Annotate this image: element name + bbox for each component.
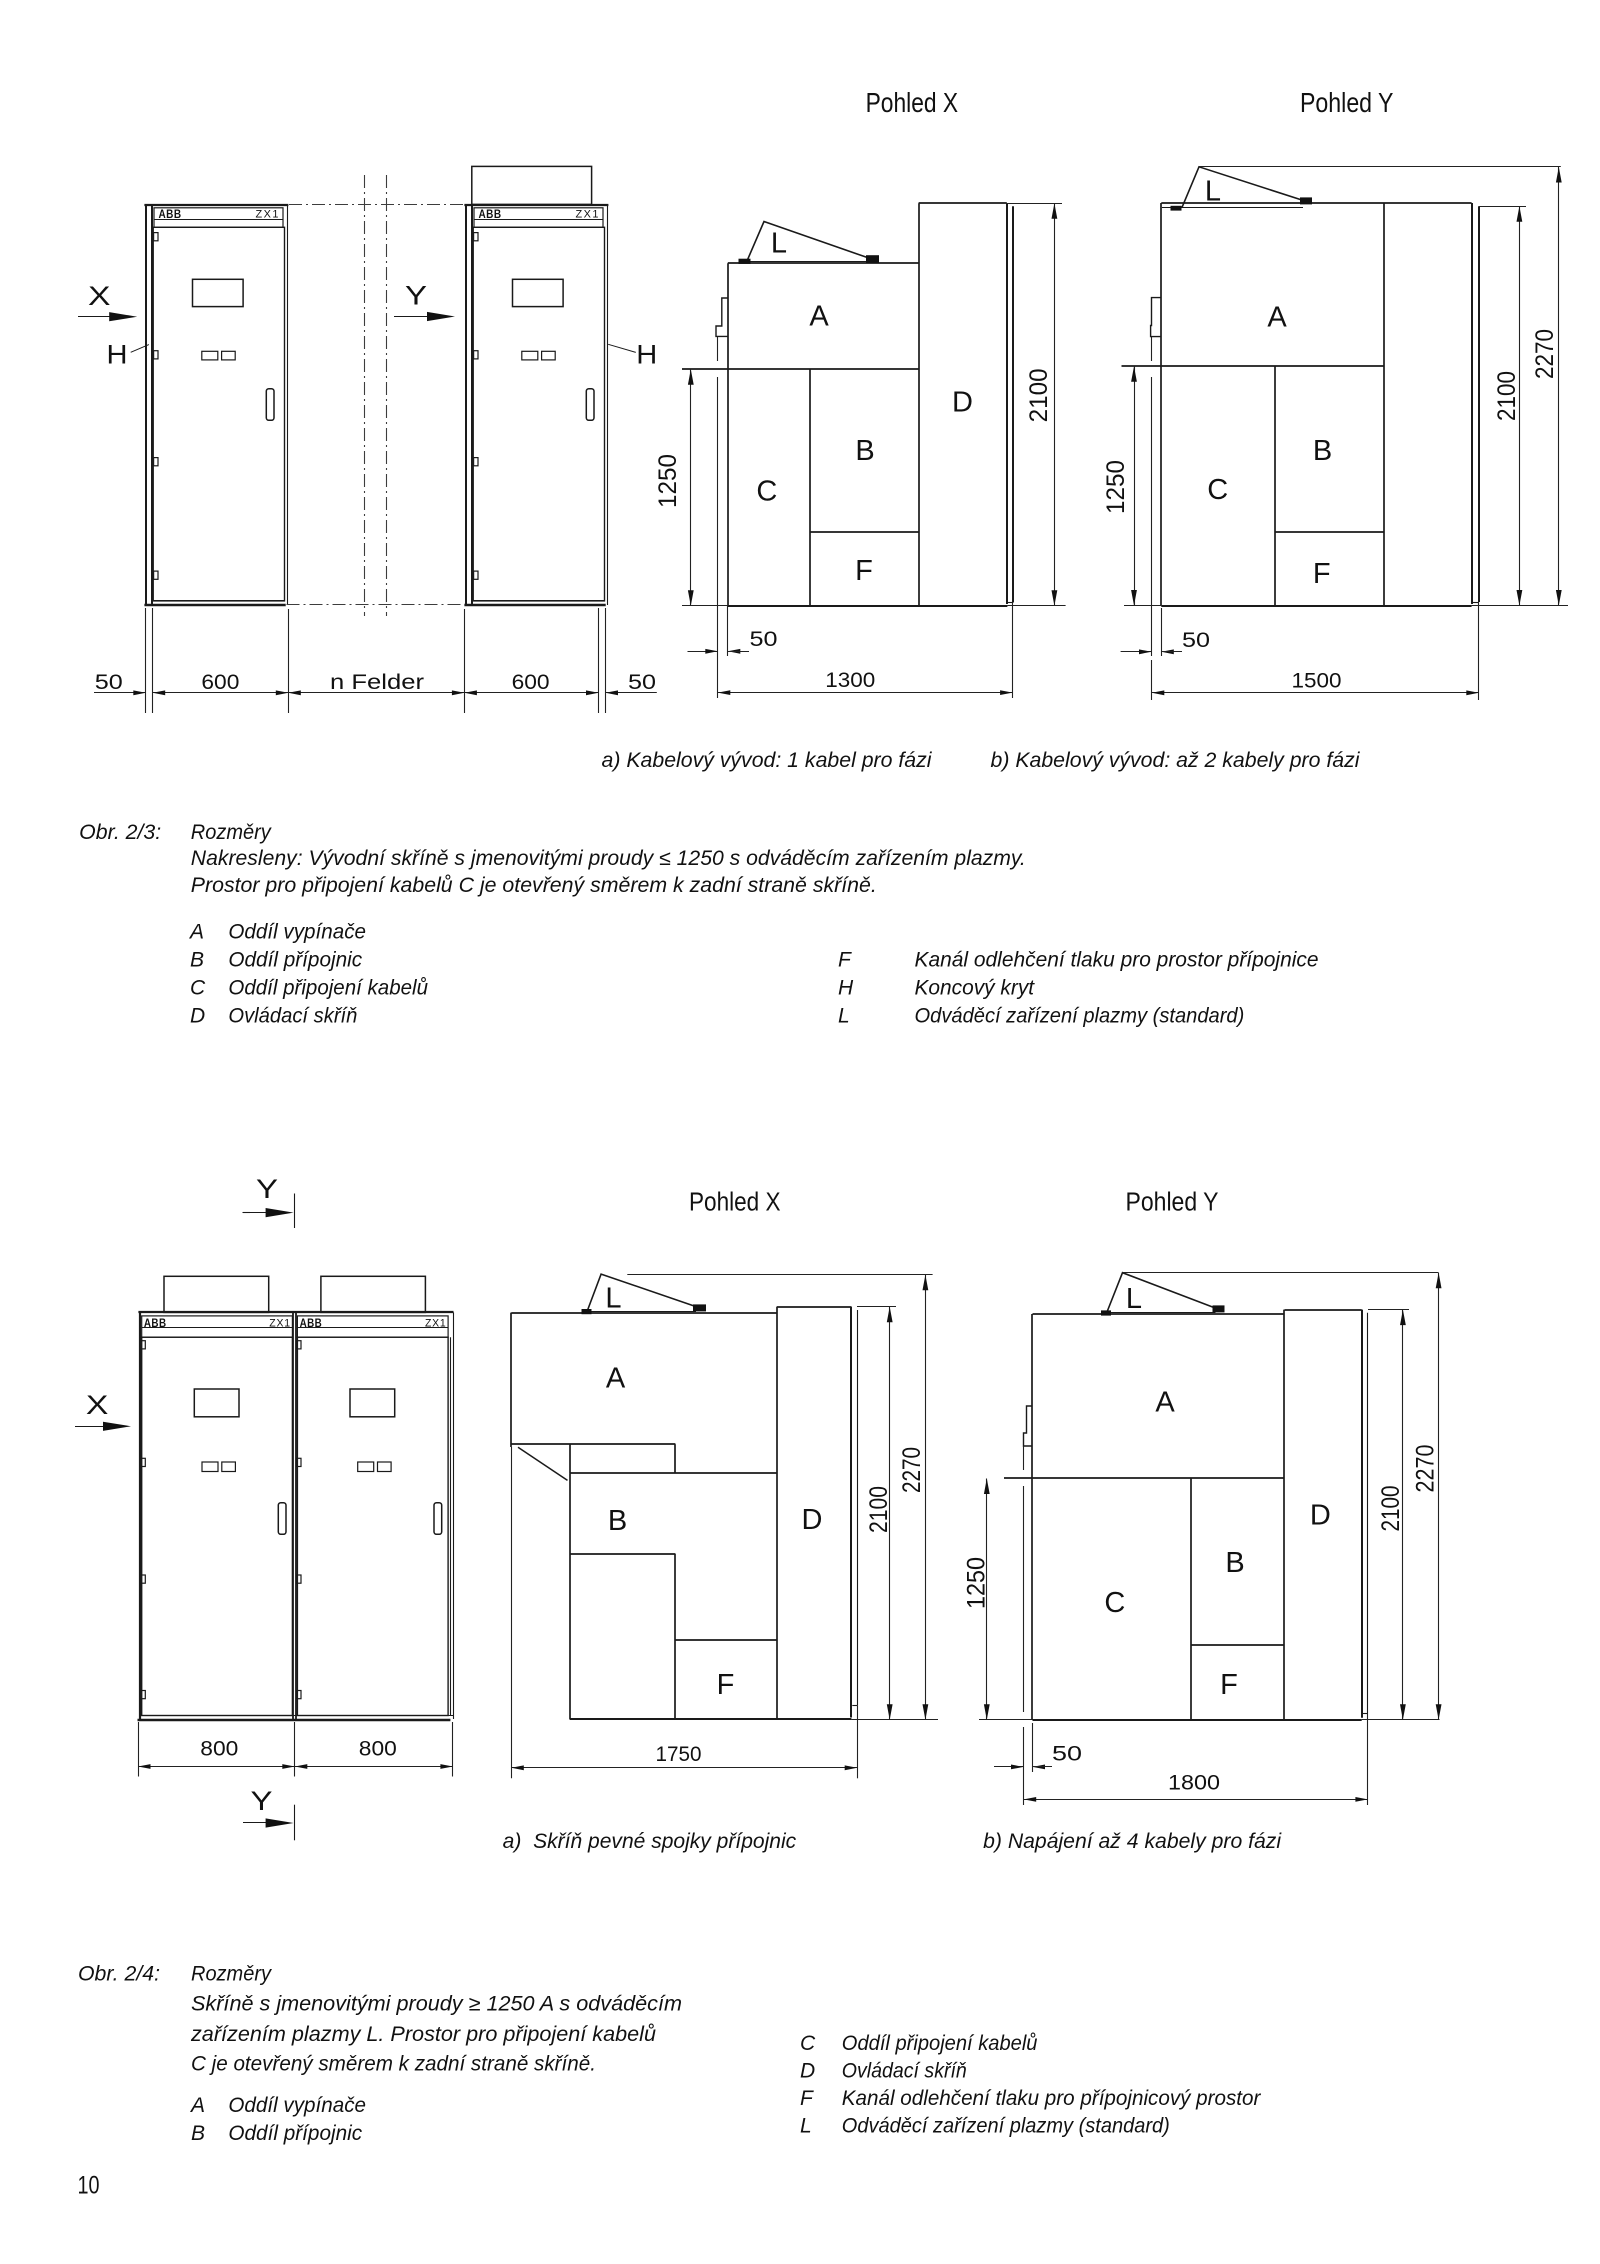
svg-text:A: A	[809, 301, 829, 333]
svg-text:b) Napájení až 4 kabely pro fá: b) Napájení až 4 kabely pro fázi	[983, 1830, 1282, 1853]
svg-text:Y: Y	[251, 1786, 273, 1816]
svg-text:Oddíl vypínače: Oddíl vypínače	[228, 2094, 366, 2117]
svg-text:50: 50	[95, 670, 123, 694]
svg-text:B: B	[1225, 1547, 1244, 1579]
svg-text:1250: 1250	[1102, 460, 1130, 514]
svg-text:A: A	[606, 1363, 626, 1395]
svg-text:Pohled Y: Pohled Y	[1126, 1189, 1219, 1217]
svg-text:Prostor pro připojení kabelů C: Prostor pro připojení kabelů C je otevře…	[191, 874, 877, 897]
svg-text:B: B	[190, 949, 204, 972]
svg-text:2100: 2100	[1025, 368, 1053, 422]
svg-text:Y: Y	[405, 281, 427, 311]
svg-text:800: 800	[200, 1736, 238, 1760]
svg-text:50: 50	[1052, 1741, 1082, 1765]
svg-text:Obr. 2/3:: Obr. 2/3:	[79, 821, 161, 844]
svg-text:B: B	[608, 1505, 627, 1537]
svg-text:2270: 2270	[1531, 329, 1559, 379]
svg-text:1750: 1750	[656, 1742, 702, 1766]
svg-text:600: 600	[201, 670, 239, 694]
svg-text:ZX1: ZX1	[256, 209, 281, 221]
svg-text:F: F	[800, 2087, 814, 2110]
svg-text:Obr. 2/4:: Obr. 2/4:	[78, 1963, 160, 1986]
svg-text:50: 50	[750, 627, 778, 651]
svg-text:a) Skříň pevné spojky přípojn: a) Skříň pevné spojky přípojnic	[503, 1830, 797, 1853]
svg-text:L: L	[800, 2115, 812, 2138]
svg-text:zařízením plazmy L. Prostor pr: zařízením plazmy L. Prostor pro připojen…	[190, 2023, 656, 2046]
svg-text:Skříně s jmenovitými proudy ≥: Skříně s jmenovitými proudy ≥ 1250 A s o…	[191, 1992, 682, 2015]
svg-text:Odváděcí zařízení plazmy (stan: Odváděcí zařízení plazmy (standard)	[842, 2115, 1170, 2138]
svg-text:L: L	[1205, 176, 1221, 208]
svg-text:Pohled X: Pohled X	[866, 87, 959, 118]
svg-text:a) Kabelový vývod: 1 kabel pro: a) Kabelový vývod: 1 kabel pro fázi	[602, 749, 933, 772]
svg-text:C: C	[1207, 474, 1228, 506]
svg-text:n Felder: n Felder	[330, 670, 424, 694]
svg-text:2100: 2100	[865, 1486, 893, 1533]
svg-text:ZX1: ZX1	[576, 209, 601, 221]
svg-text:1250: 1250	[654, 454, 682, 508]
svg-text:C: C	[800, 2032, 816, 2055]
svg-text:Oddíl vypínače: Oddíl vypínače	[228, 921, 366, 944]
svg-text:Koncový kryt: Koncový kryt	[915, 977, 1036, 1000]
svg-text:ABB: ABB	[479, 209, 502, 221]
svg-text:Rozměry: Rozměry	[191, 821, 272, 844]
svg-text:D: D	[952, 387, 973, 419]
svg-text:B: B	[855, 435, 874, 467]
svg-text:L: L	[605, 1283, 621, 1315]
svg-text:C je otevřený směrem k zadní s: C je otevřený směrem k zadní straně skří…	[191, 2052, 596, 2075]
svg-text:50: 50	[628, 670, 656, 694]
svg-text:F: F	[1220, 1669, 1238, 1701]
svg-text:D: D	[190, 1005, 205, 1028]
svg-text:50: 50	[1182, 628, 1210, 652]
svg-text:Rozměry: Rozměry	[191, 1963, 272, 1986]
svg-text:C: C	[190, 977, 206, 1000]
svg-text:2270: 2270	[1412, 1445, 1440, 1493]
svg-text:H: H	[107, 339, 128, 369]
svg-text:A: A	[189, 2094, 205, 2117]
svg-text:Oddíl připojení kabelů: Oddíl připojení kabelů	[842, 2032, 1038, 2055]
svg-text:2100: 2100	[1493, 371, 1521, 421]
svg-text:Kanál odlehčení tlaku pro příp: Kanál odlehčení tlaku pro přípojnicový p…	[842, 2087, 1262, 2110]
svg-text:A: A	[1267, 302, 1287, 334]
svg-text:1800: 1800	[1168, 1771, 1220, 1795]
svg-text:F: F	[717, 1669, 735, 1701]
svg-text:F: F	[838, 949, 852, 972]
svg-text:Pohled Y: Pohled Y	[1300, 87, 1394, 118]
svg-text:ZX1: ZX1	[425, 1318, 447, 1330]
svg-text:Kanál odlehčení tlaku pro pros: Kanál odlehčení tlaku pro prostor přípoj…	[915, 949, 1319, 972]
svg-text:D: D	[800, 2060, 815, 2083]
svg-text:Oddíl připojení kabelů: Oddíl připojení kabelů	[228, 977, 428, 1000]
svg-text:b) Kabelový vývod: až 2 kabely: b) Kabelový vývod: až 2 kabely pro fázi	[991, 749, 1361, 772]
svg-text:C: C	[1104, 1587, 1125, 1619]
svg-text:L: L	[838, 1005, 850, 1028]
svg-text:H: H	[636, 340, 657, 370]
svg-text:D: D	[802, 1504, 823, 1536]
svg-text:ABB: ABB	[144, 1318, 167, 1330]
svg-text:Nakresleny: Vývodní skříně s j: Nakresleny: Vývodní skříně s jmenovitými…	[191, 847, 1026, 870]
svg-text:10: 10	[78, 2171, 100, 2199]
svg-text:L: L	[771, 227, 787, 259]
svg-text:Oddíl přípojnic: Oddíl přípojnic	[228, 2122, 362, 2145]
svg-text:1500: 1500	[1292, 669, 1342, 693]
svg-text:ZX1: ZX1	[269, 1318, 291, 1330]
svg-text:B: B	[191, 2122, 205, 2145]
svg-text:ABB: ABB	[159, 209, 182, 221]
svg-text:F: F	[1313, 558, 1331, 590]
svg-text:Oddíl přípojnic: Oddíl přípojnic	[228, 949, 362, 972]
svg-text:F: F	[855, 555, 873, 587]
svg-text:1250: 1250	[963, 1557, 991, 1609]
svg-text:Pohled X: Pohled X	[689, 1189, 781, 1217]
svg-text:D: D	[1310, 1500, 1331, 1532]
svg-text:B: B	[1313, 435, 1332, 467]
svg-text:Ovládací skříň: Ovládací skříň	[228, 1005, 357, 1028]
svg-text:Odváděcí zařízení plazmy (stan: Odváděcí zařízení plazmy (standard)	[915, 1005, 1245, 1028]
svg-text:2270: 2270	[898, 1447, 926, 1493]
svg-text:H: H	[838, 977, 854, 1000]
svg-text:A: A	[1155, 1387, 1175, 1419]
svg-text:C: C	[756, 476, 777, 508]
svg-text:X: X	[86, 1390, 109, 1420]
svg-text:ABB: ABB	[300, 1318, 323, 1330]
svg-text:X: X	[88, 281, 111, 311]
svg-text:L: L	[1126, 1283, 1142, 1315]
svg-text:Ovládací skříň: Ovládací skříň	[842, 2060, 967, 2083]
svg-text:A: A	[188, 921, 204, 944]
svg-text:1300: 1300	[825, 668, 875, 692]
svg-text:800: 800	[359, 1736, 397, 1760]
svg-text:Y: Y	[256, 1174, 278, 1204]
svg-text:600: 600	[512, 670, 550, 694]
svg-text:2100: 2100	[1377, 1486, 1405, 1532]
